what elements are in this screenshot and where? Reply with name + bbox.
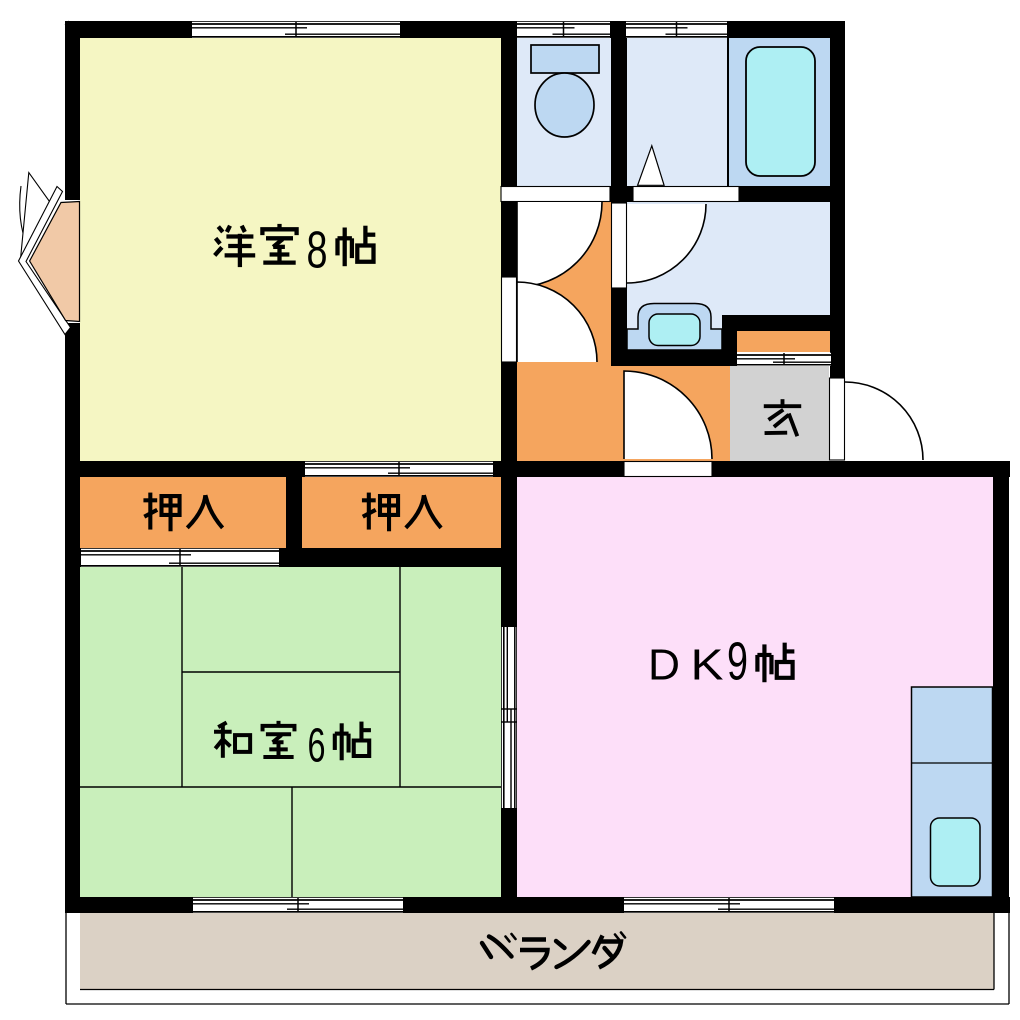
svg-text:8: 8 (307, 222, 328, 280)
svg-text:D: D (648, 642, 680, 690)
svg-text:K: K (691, 642, 724, 690)
svg-text:6: 6 (308, 720, 326, 773)
svg-text:9: 9 (727, 633, 748, 692)
